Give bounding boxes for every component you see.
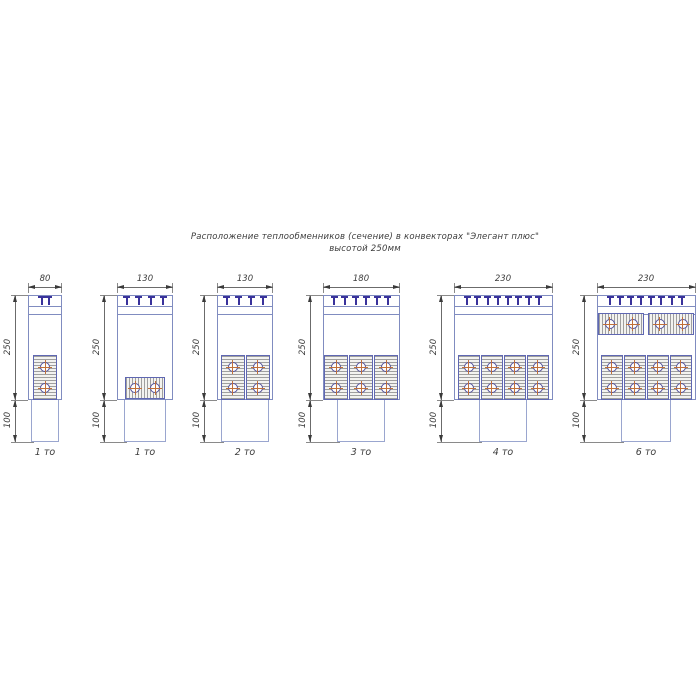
tube-cross-section: [630, 383, 640, 393]
grille-line: [597, 306, 696, 307]
tube-cross-section: [655, 319, 665, 329]
grille-slat-icon: [637, 296, 644, 306]
grille-slat-icon: [678, 296, 685, 306]
grille-slat-icon: [617, 296, 624, 306]
tube-cross-section: [676, 383, 686, 393]
dimension-arrow: [582, 435, 586, 442]
width-dimension-line: [597, 287, 696, 288]
height-dimension-label: 250: [572, 329, 582, 365]
dimension-arrow: [582, 393, 586, 400]
grille-slat-icon: [658, 296, 665, 306]
technical-drawing-canvas: Расположение теплообменников (сечение) в…: [0, 0, 700, 700]
tube-cross-section: [607, 362, 617, 372]
tube-cross-section: [653, 383, 663, 393]
tube-cross-section: [630, 362, 640, 372]
tube-cross-section: [605, 319, 615, 329]
width-dimension-label: 230: [616, 274, 676, 284]
grille-slat-icon: [648, 296, 655, 306]
tube-cross-section: [678, 319, 688, 329]
dimension-arrow: [582, 400, 586, 407]
dimension-arrow: [597, 285, 604, 289]
duct-height-dimension-label: 100: [572, 402, 582, 438]
grille-slat-icon: [607, 296, 614, 306]
type-label: 6 то: [616, 447, 676, 458]
tube-cross-section: [607, 383, 617, 393]
dimension-arrow: [582, 295, 586, 302]
grille-slat-icon: [668, 296, 675, 306]
grille-slat-icon: [627, 296, 634, 306]
convector-diagram: 2302501006 то: [0, 0, 700, 700]
tube-cross-section: [676, 362, 686, 372]
tube-cross-section: [653, 362, 663, 372]
dimension-extension-line: [580, 442, 625, 443]
grille-slat-row: [607, 296, 686, 306]
height-dimension-line: [584, 295, 585, 442]
dimension-arrow: [689, 285, 696, 289]
tube-cross-section: [628, 319, 638, 329]
duct: [621, 400, 671, 442]
